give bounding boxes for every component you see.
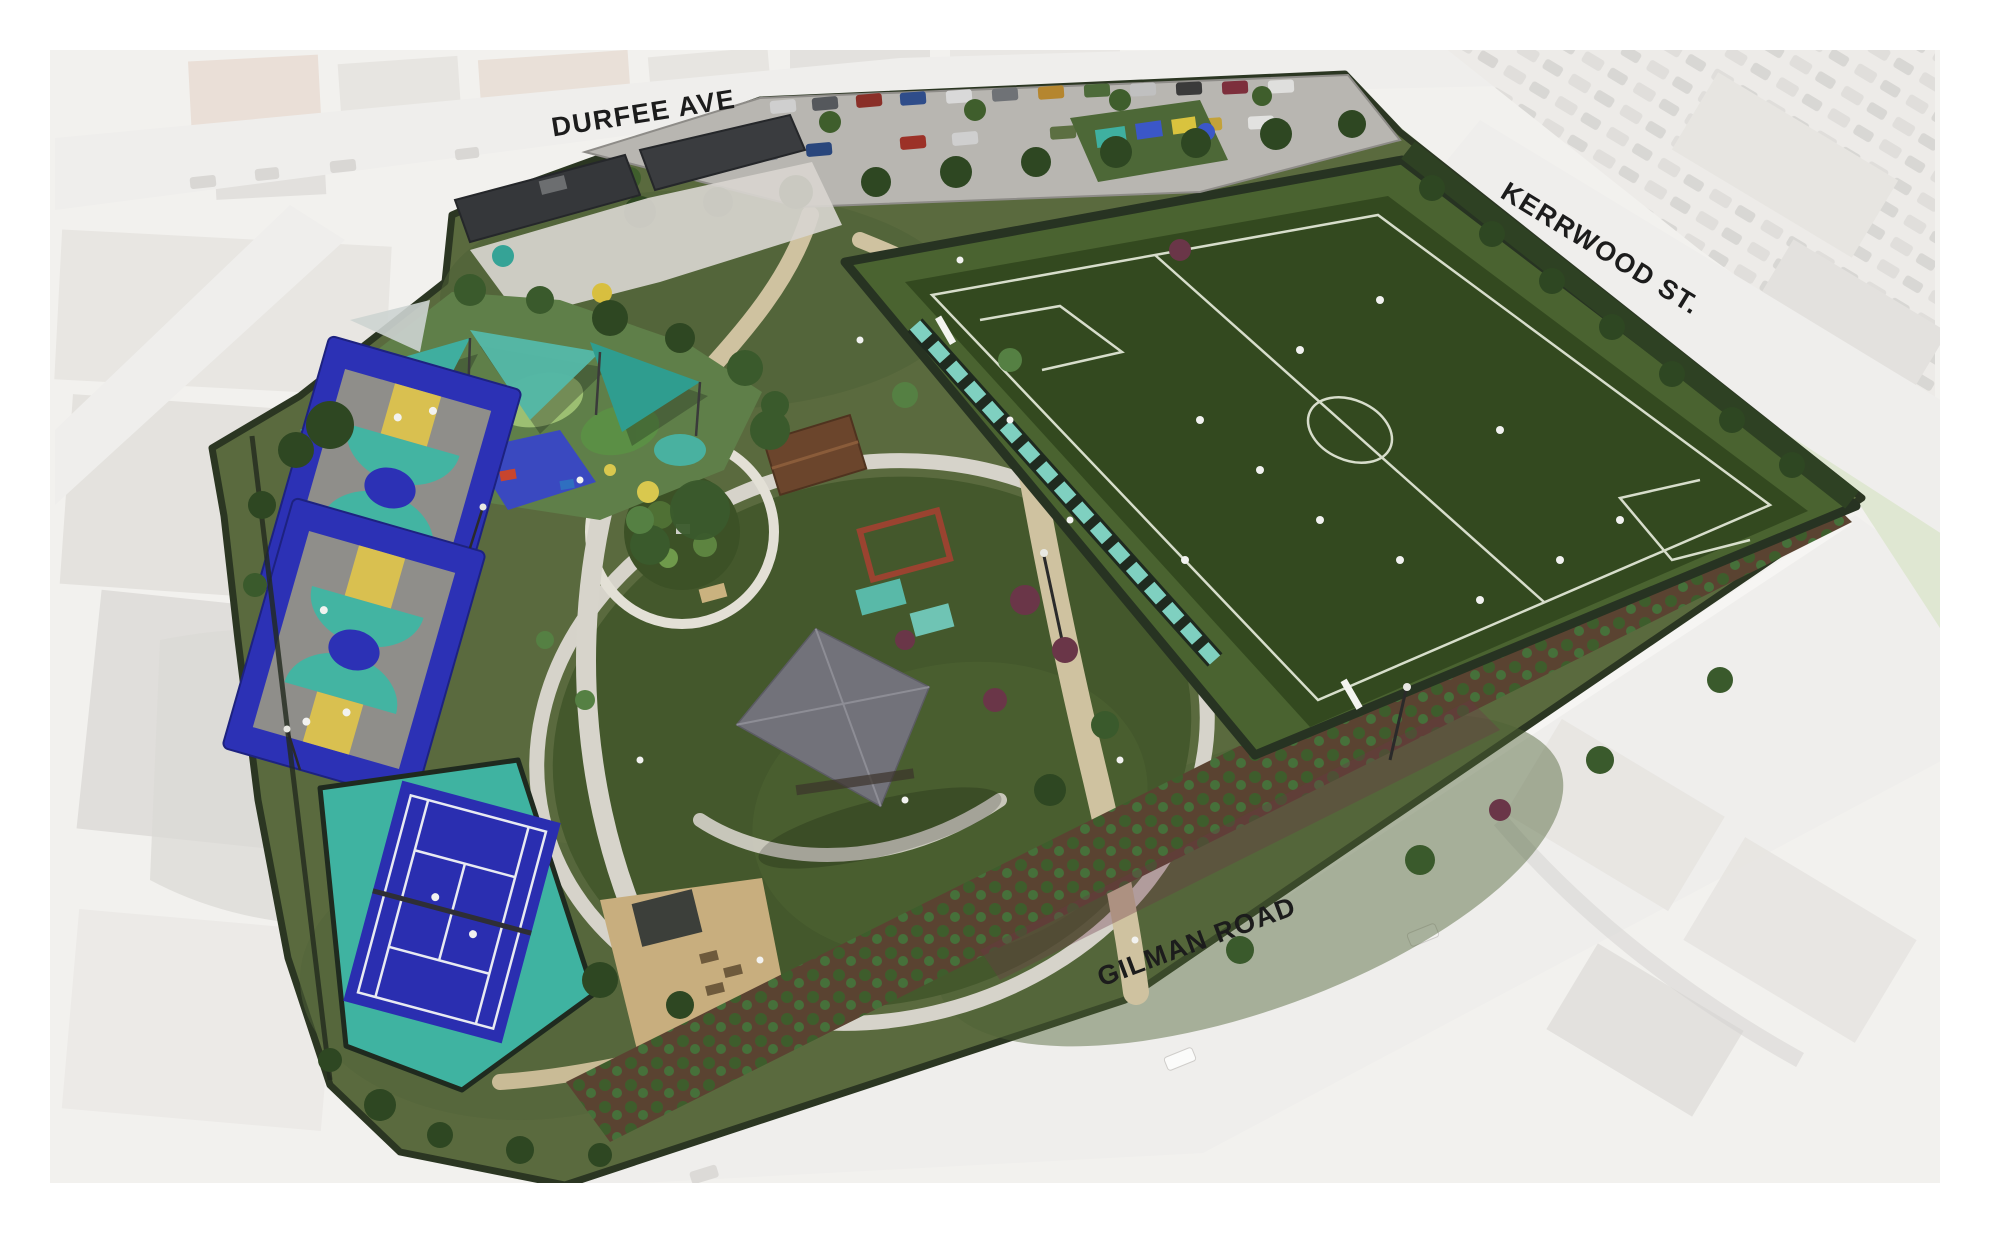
play-dome-yellow <box>637 481 659 503</box>
site-plan-rendering: DURFEE AVE KERRWOOD ST. GILMAN ROAD <box>0 0 1990 1233</box>
